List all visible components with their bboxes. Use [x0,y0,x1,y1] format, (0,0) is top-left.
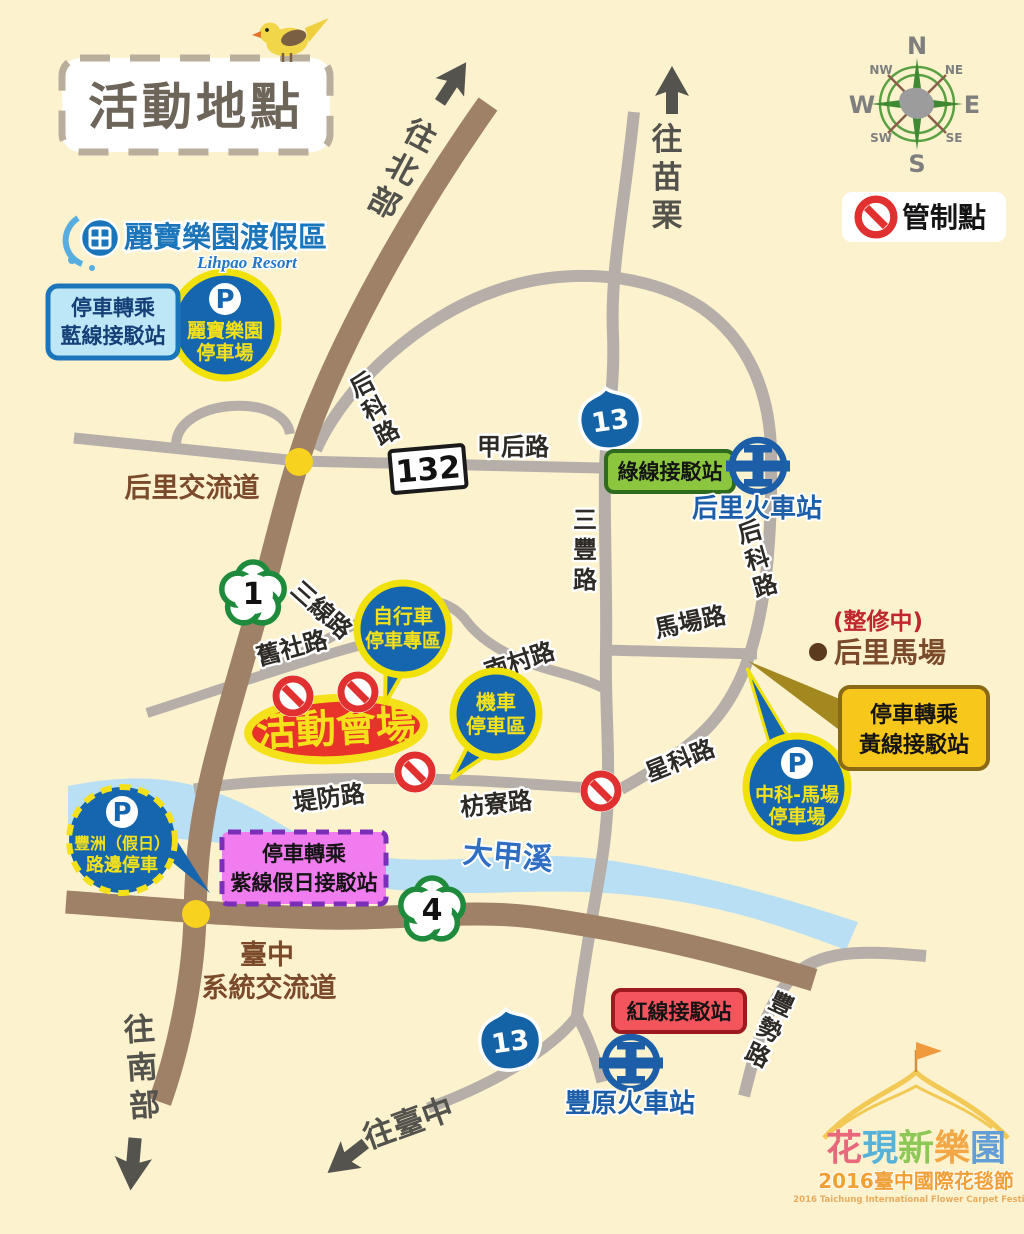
ranch-dot [809,643,827,661]
lihpao-name-zh: 麗寶樂園渡假區 [124,220,327,254]
parking-icon-letter: P [215,285,234,315]
compass-sw: SW [870,131,892,145]
railway-logo-icon [599,1037,663,1089]
bicycle-parking-line1: 自行車 [373,604,433,628]
lihpao-parking-line2: 停車場 [196,341,253,364]
compass-ne: NE [945,63,963,77]
no-entry-icon [580,770,622,812]
motorcycle-parking-line1: 機車 [476,690,516,714]
taichung-interchange-line1: 臺中 [240,940,294,971]
zhongke-parking-callout: P 中科-馬場 停車場 [746,736,848,838]
legend-label: 管制點 [902,201,986,234]
festival-subtitle-en: 2016 Taichung International Flower Carpe… [793,1195,1024,1205]
houli-interchange-label: 后里交流道 [125,472,260,504]
red-shuttle-label: 紅線接駁站 [627,1000,732,1024]
green-shuttle-label: 綠線接駁站 [618,460,723,484]
fengzhou-parking-line2: 路邊停車 [86,854,158,876]
no-entry-icon [394,751,436,793]
houli-station-label: 后里火車站 [692,494,822,524]
yellow-shuttle-box: 停車轉乘 黃線接駁站 [840,687,988,769]
fengzhou-parking-callout: P 豐洲（假日） 路邊停車 [69,787,175,893]
title-box: 活動地點 [62,58,330,152]
direction-miaoli-label: 往苗栗 [652,122,683,234]
provincial-13-number: 13 [590,404,632,440]
blue-shuttle-line1: 停車轉乘 [71,296,155,320]
compass-n: N [907,32,927,60]
bicycle-parking-line2: 停車專區 [365,629,441,652]
yellow-shuttle-line2: 黃線接駁站 [859,732,969,758]
compass-e: E [964,91,980,119]
railway-logo-icon [726,440,790,492]
legend-control-point: 管制點 [842,192,1006,242]
ranch-status: (整修中) [833,608,923,635]
green-shuttle-box: 綠線接駁站 [606,451,734,492]
road-label-jiahou: 甲后路 [477,433,550,461]
no-entry-icon [337,671,379,713]
parking-icon-letter: P [112,798,131,828]
fengyuan-station-label: 豐原火車站 [565,1089,695,1119]
blue-shuttle-line2: 藍線接駁站 [61,324,166,348]
zhongke-parking-line2: 停車場 [768,805,825,828]
fengzhou-parking-line1: 豐洲（假日） [74,834,170,853]
motorcycle-parking-line2: 停車區 [466,714,526,738]
event-location-map: 甲后路 后科路 后科路 三豐路 馬場路 星科路 南村路 三線路 舊社路 堤防路 … [0,0,1024,1234]
lihpao-parking-callout: P 麗寶樂園 停車場 [172,272,278,378]
lihpao-name-en: Lihpao Resort [196,253,298,272]
parking-icon-letter: P [787,749,806,779]
route-marker-132: 132 [389,445,466,493]
ranch-label: 后里馬場 [834,636,946,669]
freeway-4-number: 4 [422,893,443,928]
zhongke-parking-line1: 中科-馬場 [755,783,839,806]
bicycle-parking-callout: 自行車 停車專區 [357,583,449,675]
compass-nw: NW [869,63,892,77]
provincial-13-number: 13 [490,1025,532,1061]
road-machang [605,650,757,654]
no-entry-icon [272,675,314,717]
freeway-1-number: 1 [243,577,264,612]
lihpao-parking-line1: 麗寶樂園 [187,319,263,342]
compass-w: W [849,91,875,119]
page-title: 活動地點 [88,78,304,136]
road-label-sanfeng: 三豐路 [573,506,598,594]
festival-subtitle: 2016臺中國際花毯節 [818,1169,1014,1193]
purple-shuttle-line1: 停車轉乘 [262,842,346,866]
motorcycle-parking-callout: 機車 停車區 [453,671,539,757]
festival-title: 花現新樂園 [826,1128,1006,1169]
purple-shuttle-box: 停車轉乘 紫線假日接駁站 [222,832,386,904]
taichung-interchange-dot [182,900,210,928]
taichung-interchange-line2: 系統交流道 [202,972,337,1004]
red-shuttle-box: 紅線接駁站 [613,990,745,1032]
no-entry-icon [858,199,894,235]
purple-shuttle-line2: 紫線假日接駁站 [231,871,378,895]
houli-interchange-dot [285,448,313,476]
compass-se: SE [946,131,963,145]
compass-s: S [908,150,925,178]
yellow-shuttle-line1: 停車轉乘 [870,702,958,728]
route-132-number: 132 [394,449,462,491]
blue-shuttle-box: 停車轉乘 藍線接駁站 [48,286,178,358]
